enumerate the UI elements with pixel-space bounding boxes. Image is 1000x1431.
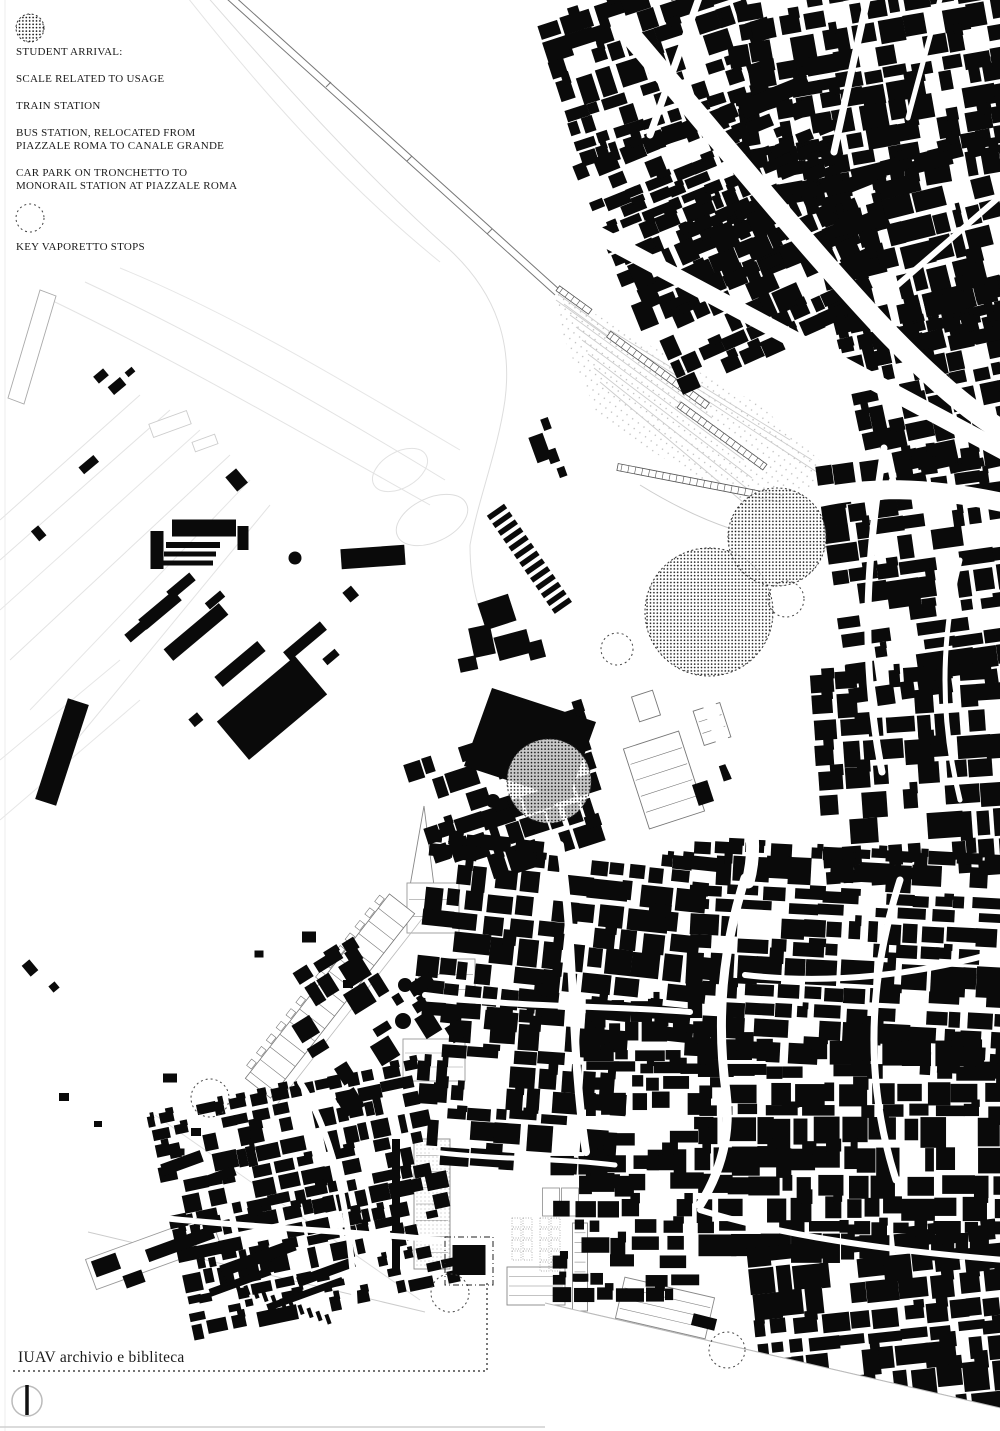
bus-bay-bar (261, 1291, 268, 1302)
legend-label: STUDENT ARRIVAL: (16, 46, 237, 59)
site-plan-sheet: STUDENT ARRIVAL: SCALE RELATED TO USAGE … (0, 0, 1000, 1431)
dashed-circle-icon (15, 203, 45, 233)
legend-item-bus-station: BUS STATION, RELOCATED FROM PIAZZALE ROM… (16, 127, 237, 153)
bus-bay-bar (324, 1314, 331, 1325)
legend-label: TRAIN STATION (16, 100, 237, 113)
north-marker-icon (12, 1385, 42, 1416)
legend-label: MONORAIL STATION AT PIAZZALE ROMA (16, 180, 237, 193)
legend-item-train-station: TRAIN STATION (16, 100, 237, 113)
legend-item-scale: SCALE RELATED TO USAGE (16, 73, 237, 86)
legend-label: BUS STATION, RELOCATED FROM (16, 127, 237, 140)
outlined-building (632, 690, 661, 722)
legend-label-vaporetto: KEY VAPORETTO STOPS (16, 241, 145, 253)
legend: STUDENT ARRIVAL: SCALE RELATED TO USAGE … (0, 0, 320, 280)
outlined-building (149, 411, 191, 438)
legend-item-car-park: CAR PARK ON TRONCHETTO TO MONORAIL STATI… (16, 167, 237, 193)
bus-bay-bar (315, 1311, 322, 1322)
outlined-building (192, 434, 218, 452)
legend-label: PIAZZALE ROMA TO CANALE GRANDE (16, 140, 237, 153)
legend-label: CAR PARK ON TRONCHETTO TO (16, 167, 237, 180)
hatched-circle-icon (15, 13, 45, 43)
outlined-building (623, 731, 704, 829)
sheet-title: IUAV archivio e bibliteca (18, 1349, 185, 1367)
legend-item-student-arrival: STUDENT ARRIVAL: (16, 46, 237, 59)
bus-bay-bar (297, 1304, 304, 1315)
bus-bay-bar (306, 1307, 313, 1318)
legend-label: SCALE RELATED TO USAGE (16, 73, 237, 86)
